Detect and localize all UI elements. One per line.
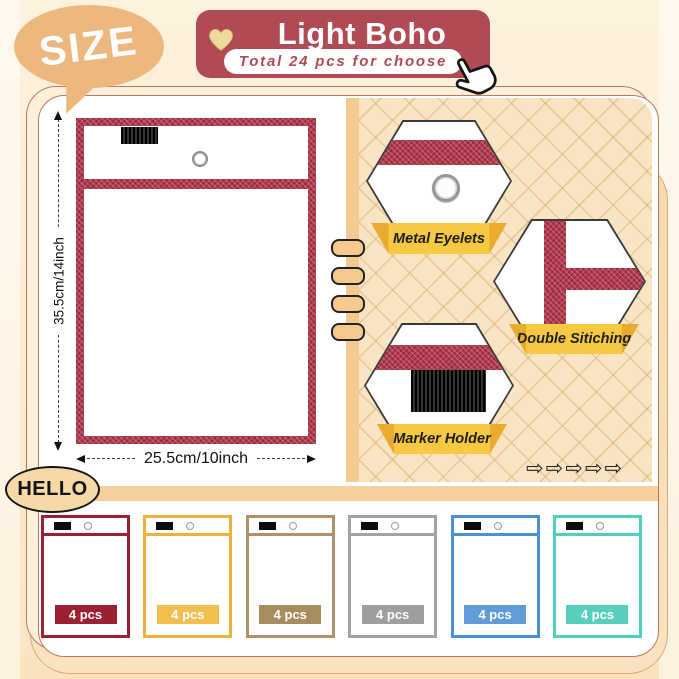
marker-holder-strip (259, 522, 276, 530)
stitched-band (368, 140, 510, 165)
main-card: 35.5cm/14inch 25.5cm/10inch Metal Eyelet… (38, 95, 659, 657)
marker-holder-strip (361, 522, 378, 530)
pocket-variant-blue: 4 pcs (451, 515, 540, 638)
quantity-badge: 4 pcs (464, 605, 526, 624)
size-label: SIZE (37, 17, 141, 76)
pocket-variant-dark-red: 4 pcs (41, 515, 130, 638)
quantity-badge: 4 pcs (157, 605, 219, 624)
quantity-badge: 4 pcs (259, 605, 321, 624)
marker-holder-strip (54, 522, 71, 530)
binding-pill (331, 323, 365, 341)
height-dimension: 35.5cm/14inch (52, 111, 66, 451)
pocket-top (146, 518, 229, 536)
arrow-right-icon: ⇨ (604, 456, 622, 481)
metal-eyelet-icon (432, 174, 460, 202)
feature-label-ribbon: Metal Eyelets (371, 223, 507, 254)
pocket-top (44, 518, 127, 536)
pocket-top (249, 518, 332, 536)
pocket-top (454, 518, 537, 536)
subtitle-pill: Total 24 pcs for choose (224, 49, 462, 74)
arrow-down-icon (54, 442, 62, 451)
size-bubble: SIZE (14, 5, 164, 88)
arrow-right-icon: ⇨ (546, 456, 564, 481)
color-variants-row: 4 pcs 4 pcs 4 pcs (41, 515, 642, 638)
marker-holder-strip (411, 370, 486, 412)
arrow-left-icon (76, 455, 85, 463)
product-infographic: 35.5cm/14inch 25.5cm/10inch Metal Eyelet… (0, 0, 679, 679)
pocket-variant-yellow: 4 pcs (143, 515, 232, 638)
feature-label-ribbon: Double Sitiching (509, 324, 639, 354)
quantity-badge: 4 pcs (362, 605, 424, 624)
pocket-top (351, 518, 434, 536)
stitched-band-horizontal (544, 268, 644, 290)
marker-holder-strip (464, 522, 481, 530)
metal-eyelet-icon (391, 522, 399, 530)
pocket-body-section (84, 189, 308, 436)
arrow-right-icon: ⇨ (565, 456, 583, 481)
quantity-badge: 4 pcs (55, 605, 117, 624)
arrow-right-icon: ⇨ (526, 456, 544, 481)
width-dimension: 25.5cm/10inch (76, 448, 316, 470)
arrow-right-icon: ⇨ (585, 456, 603, 481)
binding-pill (331, 295, 365, 313)
marker-holder-strip (566, 522, 583, 530)
binding-pill (331, 267, 365, 285)
quantity-badge: 4 pcs (566, 605, 628, 624)
metal-eyelet-icon (186, 522, 194, 530)
metal-eyelet-icon (596, 522, 604, 530)
hello-bubble: HELLO (5, 466, 100, 513)
metal-eyelet-icon (494, 522, 502, 530)
binding-pill (331, 239, 365, 257)
metal-eyelet-icon (192, 151, 208, 167)
stitched-band (366, 345, 512, 370)
metal-eyelet-icon (84, 522, 92, 530)
pocket-diagram (76, 118, 316, 444)
product-title: Light Boho (242, 16, 482, 52)
arrow-row: ⇨ ⇨ ⇨ ⇨ ⇨ (526, 454, 650, 482)
arrow-right-icon (307, 455, 316, 463)
pocket-variant-teal: 4 pcs (553, 515, 642, 638)
width-label: 25.5cm/10inch (137, 450, 255, 468)
pocket-variant-khaki: 4 pcs (246, 515, 335, 638)
marker-holder-strip (156, 522, 173, 530)
feature-label-ribbon: Marker Holder (377, 424, 507, 454)
divider-bar (39, 486, 658, 501)
pocket-variant-gray: 4 pcs (348, 515, 437, 638)
marker-holder-strip (121, 127, 158, 144)
pocket-top (556, 518, 639, 536)
metal-eyelet-icon (289, 522, 297, 530)
height-label: 35.5cm/14inch (46, 227, 73, 335)
